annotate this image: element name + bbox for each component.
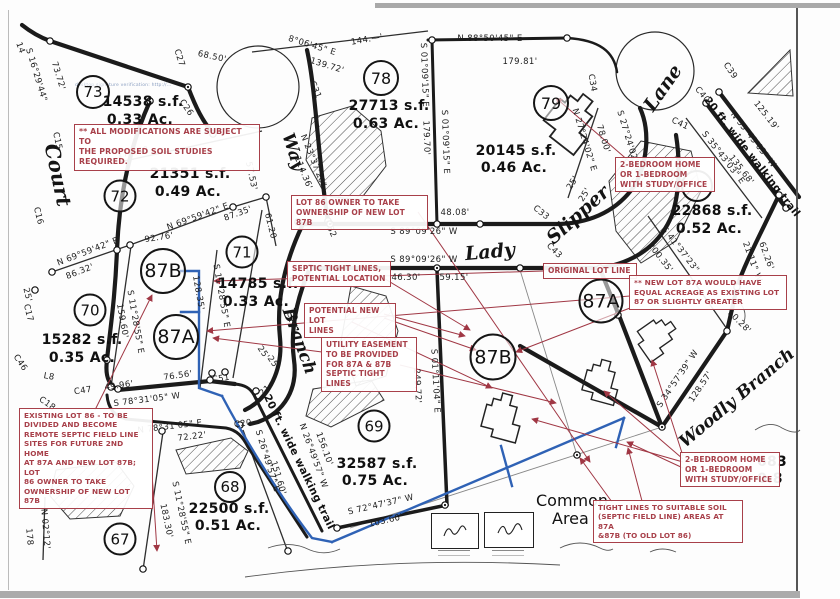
annotation-line: LOT 86 OWNER TO TAKE xyxy=(296,198,423,208)
signature-caption-1 xyxy=(438,550,470,556)
lot-87A-right-label: 87A xyxy=(582,290,619,312)
signature-caption-2 xyxy=(492,550,524,556)
annotation-original-lot-line: ORIGINAL LOT LINE xyxy=(543,263,637,279)
lot-number-87B-right: 87B xyxy=(470,334,517,381)
culdesac-bulb-west xyxy=(217,46,299,128)
lot-73-label: 73 xyxy=(83,83,102,101)
lot-number-87A-right: 87A xyxy=(579,279,624,324)
annotation-line: REMOTE SEPTIC FIELD LINE xyxy=(24,430,148,439)
annotation-line: LINES xyxy=(309,326,391,336)
lot-71-label: 71 xyxy=(232,243,251,261)
annotation-line: EXISTING LOT 86 - TO BE xyxy=(24,411,148,420)
annotation-line: TIGHT LINES TO SUITABLE SOIL xyxy=(598,503,738,512)
annotation-soil-studies: ** ALL MODIFICATIONS ARE SUBJECT TO THE … xyxy=(74,124,260,171)
annotation-line: AT 87A AND NEW LOT 87B; LOT xyxy=(24,458,148,477)
distance-label: 48.08' xyxy=(440,208,469,218)
signature-mark xyxy=(485,513,533,547)
annotation-new-lot-87a: ** NEW LOT 87A WOULD HAVE EQUAL ACREAGE … xyxy=(629,275,787,310)
lot-number-68: 68 xyxy=(214,471,246,503)
lot-80-area-ac: 0.52 Ac. xyxy=(676,221,742,237)
annotation-line: ** NEW LOT 87A WOULD HAVE xyxy=(634,278,782,288)
annotation-line: WITH STUDY/OFFICE xyxy=(620,180,710,190)
lot-78-area-sf: 27713 s.f. xyxy=(349,98,430,114)
lot-number-72: 72 xyxy=(104,180,137,213)
annotation-line: 2-BEDROOM HOME xyxy=(620,160,710,170)
lot-69-area-ac: 0.75 Ac. xyxy=(342,473,408,489)
annotation-line: ORIGINAL LOT LINE xyxy=(548,266,632,276)
lot-72-label: 72 xyxy=(110,187,129,205)
page-edge-right xyxy=(796,8,798,592)
annotation-line: 86 OWNER TO TAKE xyxy=(24,477,148,486)
annotation-line: OR 1-BEDROOM xyxy=(620,170,710,180)
plat-map-scan: desktop signature verification: http://…… xyxy=(0,0,840,599)
distance-label: 178 xyxy=(23,528,34,546)
annotation-line: POTENTIAL LOCATION xyxy=(292,274,386,284)
lot-78-label: 78 xyxy=(371,69,391,88)
signature-box-2 xyxy=(484,512,534,548)
lot-73-area-sf: 14538 s.f. xyxy=(103,94,184,110)
annotation-line: WITH STUDY/OFFICE xyxy=(685,475,775,485)
bearing-label: S 89°09'26" W xyxy=(390,255,457,265)
signature-box-1 xyxy=(431,513,479,549)
scan-edge-bottom xyxy=(0,591,800,598)
lot-79-label: 79 xyxy=(541,94,561,113)
annotation-line: EQUAL ACREAGE AS EXISTING LOT xyxy=(634,288,782,298)
annotation-line: &87B (TO OLD LOT 86) xyxy=(598,531,738,540)
annotation-line: 2-BEDROOM HOME xyxy=(685,455,775,465)
lot-70-area-ac: 0.35 Ac. xyxy=(49,350,115,366)
annotation-line: ** ALL MODIFICATIONS ARE SUBJECT TO xyxy=(79,127,255,147)
lot-80-area-sf: 22868 s.f. xyxy=(672,203,753,219)
annotation-line: OWNERSHIP OF NEW LOT 87B xyxy=(24,487,148,506)
lot-71-area-ac: 0.33 Ac. xyxy=(223,294,289,310)
street-lady: Lady xyxy=(464,239,516,265)
annotation-line: SITES FOR FUTURE 2ND HOME xyxy=(24,439,148,458)
lot-79-area-ac: 0.46 Ac. xyxy=(481,160,547,176)
annotation-line: SEPTIC TIGHT LINES, xyxy=(292,264,386,274)
annotation-line: 87 OR SLIGHTLY GREATER xyxy=(634,297,782,307)
annotation-line: FOR 87A & 87B xyxy=(326,360,412,370)
lot-87B-left-label: 87B xyxy=(144,260,181,282)
annotation-utility-easement: UTILITY EASEMENT TO BE PROVIDED FOR 87A … xyxy=(321,337,417,392)
annotation-line: SEPTIC TIGHT LINES xyxy=(326,369,412,389)
annotation-line: UTILITY EASEMENT xyxy=(326,340,412,350)
lot-68-area-ac: 0.51 Ac. xyxy=(195,518,261,534)
lot-number-67: 67 xyxy=(104,523,137,556)
annotation-lot86-owner: LOT 86 OWNER TO TAKE OWNERSHIP OF NEW LO… xyxy=(291,195,428,230)
annotation-line: DIVIDED AND BECOME xyxy=(24,420,148,429)
lot-number-70: 70 xyxy=(74,294,107,327)
lot-number-71: 71 xyxy=(226,236,259,269)
distance-label: 59.15' xyxy=(439,273,468,283)
annotation-line: THE PROPOSED SOIL STUDIES REQUIRED. xyxy=(79,147,255,167)
annotation-line: TO BE PROVIDED xyxy=(326,350,412,360)
scan-edge-top xyxy=(375,3,840,8)
annotation-tight-lines: TIGHT LINES TO SUITABLE SOIL (SEPTIC FIE… xyxy=(593,500,743,543)
lot-68-area-sf: 22500 s.f. xyxy=(189,501,270,517)
page-edge-left xyxy=(8,10,9,590)
distance-label: 179.81' xyxy=(503,57,538,67)
lot-number-87A-left: 87A xyxy=(153,314,199,360)
lot-number-79: 79 xyxy=(533,85,569,121)
lot-68-label: 68 xyxy=(220,478,239,496)
lot-87A-left-label: 87A xyxy=(157,326,194,348)
annotation-potential-lines: POTENTIAL NEW LOT LINES xyxy=(304,303,396,338)
lot-70-label: 70 xyxy=(80,301,99,319)
lot-69-area-sf: 32587 s.f. xyxy=(337,456,418,472)
signature-mark xyxy=(432,514,478,548)
line-label: L8 xyxy=(43,371,56,383)
annotation-septic-location: SEPTIC TIGHT LINES, POTENTIAL LOCATION xyxy=(287,261,391,287)
lot-number-87B-left: 87B xyxy=(140,248,186,294)
lot-67-label: 67 xyxy=(110,530,129,548)
annotation-line: OR 1-BEDROOM xyxy=(685,465,775,475)
bearing-label: N 88°50'45" E xyxy=(457,34,522,44)
lot-79-area-sf: 20145 s.f. xyxy=(476,143,557,159)
distance-label: 179.70' xyxy=(420,120,431,155)
lot-number-78: 78 xyxy=(363,60,399,96)
lot-number-69: 69 xyxy=(358,410,391,443)
lot-72-area-ac: 0.49 Ac. xyxy=(155,184,221,200)
lot-69-label: 69 xyxy=(364,417,383,435)
annotation-line: OWNERSHIP OF NEW LOT 87B xyxy=(296,208,423,228)
lot-70-area-sf: 15282 s.f. xyxy=(42,332,123,348)
annotation-bedroom-top: 2-BEDROOM HOME OR 1-BEDROOM WITH STUDY/O… xyxy=(615,157,715,192)
annotation-line: (SEPTIC FIELD LINE) AREAS AT 87A xyxy=(598,512,738,531)
lot-78-area-ac: 0.63 Ac. xyxy=(353,116,419,132)
annotation-existing-lot-86: EXISTING LOT 86 - TO BE DIVIDED AND BECO… xyxy=(19,408,153,509)
annotation-line: POTENTIAL NEW LOT xyxy=(309,306,391,326)
annotation-bedroom-bottom: 2-BEDROOM HOME OR 1-BEDROOM WITH STUDY/O… xyxy=(680,452,780,487)
distance-label: 46.30' xyxy=(391,273,420,283)
lot-87B-right-label: 87B xyxy=(474,346,511,368)
